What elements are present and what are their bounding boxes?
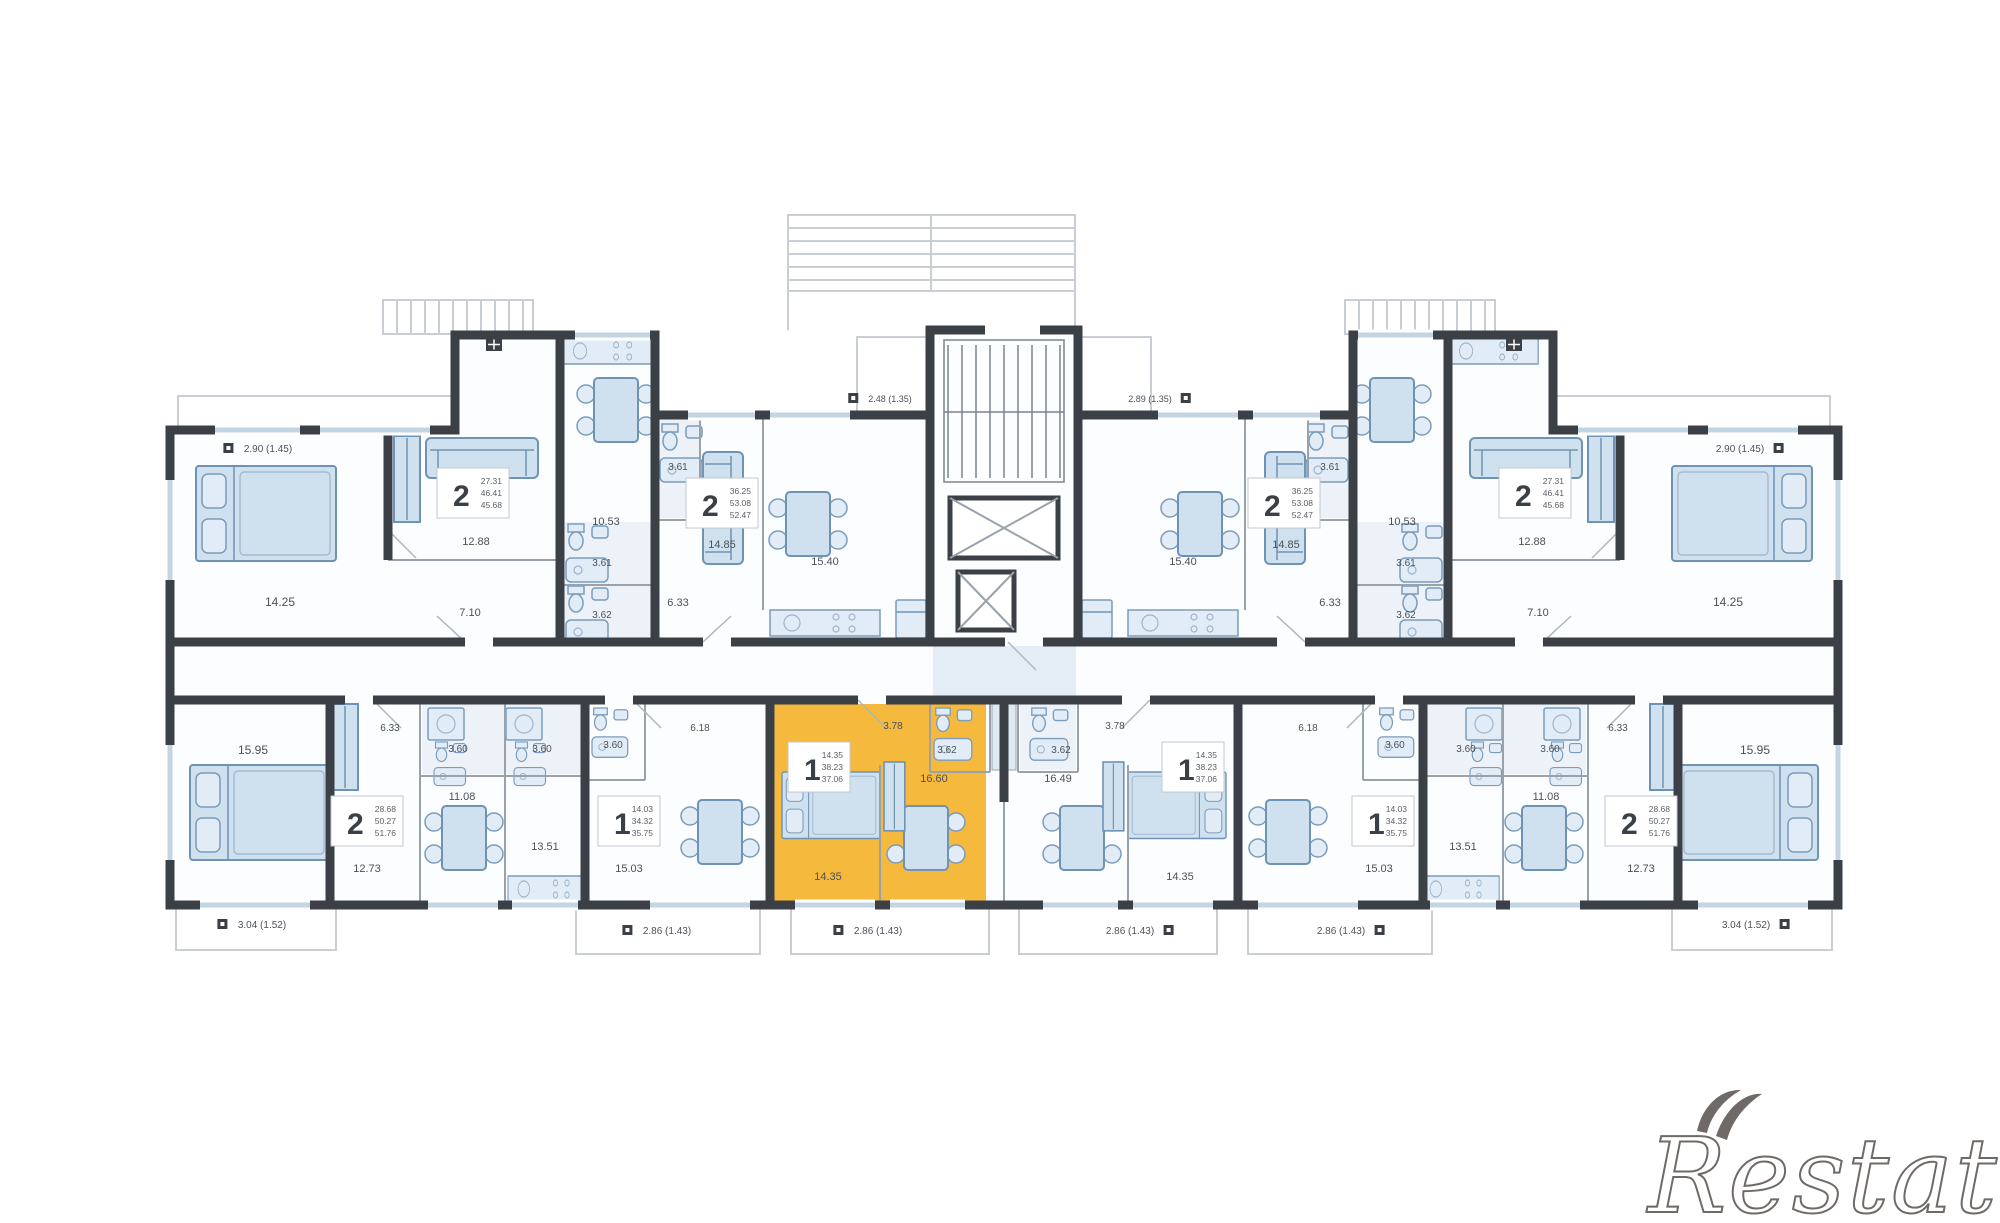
area-label: 3.62 bbox=[1051, 745, 1071, 756]
svg-text:53.08: 53.08 bbox=[1292, 498, 1314, 508]
svg-text:6.18: 6.18 bbox=[1298, 723, 1318, 734]
svg-text:38.23: 38.23 bbox=[1196, 762, 1218, 772]
area-label: 3.61 bbox=[1320, 462, 1340, 473]
svg-text:15.95: 15.95 bbox=[238, 743, 268, 757]
area-label: 7.10 bbox=[1527, 607, 1548, 619]
svg-text:2.86 (1.43): 2.86 (1.43) bbox=[854, 926, 902, 937]
svg-text:50.27: 50.27 bbox=[1649, 816, 1671, 826]
svg-text:7.10: 7.10 bbox=[459, 607, 480, 619]
svg-text:34.32: 34.32 bbox=[632, 816, 654, 826]
area-label: 6.33 bbox=[1319, 597, 1340, 609]
svg-text:50.27: 50.27 bbox=[375, 816, 397, 826]
svg-text:14.35: 14.35 bbox=[1166, 871, 1194, 883]
svg-text:51.76: 51.76 bbox=[375, 828, 397, 838]
svg-text:36.25: 36.25 bbox=[730, 486, 752, 496]
area-label: 13.51 bbox=[1449, 841, 1477, 853]
svg-text:14.03: 14.03 bbox=[1386, 804, 1408, 814]
svg-text:46.41: 46.41 bbox=[1543, 488, 1565, 498]
svg-text:3.62: 3.62 bbox=[1396, 610, 1416, 621]
svg-text:3.62: 3.62 bbox=[592, 610, 612, 621]
area-label: 3.60 bbox=[1456, 744, 1476, 755]
svg-text:3.60: 3.60 bbox=[1385, 740, 1405, 751]
unit-type-label: 227.3146.4145.68 bbox=[1499, 468, 1571, 518]
svg-text:37.06: 37.06 bbox=[822, 774, 844, 784]
svg-text:51.76: 51.76 bbox=[1649, 828, 1671, 838]
area-label: 2.86 (1.43) bbox=[622, 925, 691, 937]
area-label: 2.86 (1.43) bbox=[1317, 925, 1385, 937]
area-label: 12.88 bbox=[1518, 536, 1546, 548]
svg-text:27.31: 27.31 bbox=[481, 476, 503, 486]
area-label: 2.86 (1.43) bbox=[833, 925, 902, 937]
svg-text:2: 2 bbox=[1515, 480, 1532, 513]
unit-type-label: 227.3146.4145.68 bbox=[437, 468, 509, 518]
area-label: 3.60 bbox=[532, 744, 552, 755]
floorplan-page: 2.90 (1.45)14.2512.887.1010.533.613.623.… bbox=[0, 0, 2000, 1223]
area-label: 12.73 bbox=[353, 863, 381, 875]
svg-text:6.33: 6.33 bbox=[667, 597, 688, 609]
area-label: 3.78 bbox=[1105, 721, 1125, 732]
area-label: 15.03 bbox=[615, 863, 643, 875]
area-label: 3.62 bbox=[1396, 610, 1416, 621]
area-label: 15.40 bbox=[1169, 556, 1197, 568]
svg-text:14.03: 14.03 bbox=[632, 804, 654, 814]
area-label: 3.04 (1.52) bbox=[1722, 919, 1790, 931]
svg-text:6.33: 6.33 bbox=[380, 723, 400, 734]
svg-text:2.86 (1.43): 2.86 (1.43) bbox=[1106, 926, 1154, 937]
area-label: 14.85 bbox=[708, 539, 736, 551]
area-label: 14.35 bbox=[814, 871, 842, 883]
area-label: 7.10 bbox=[459, 607, 480, 619]
svg-text:14.35: 14.35 bbox=[1196, 750, 1218, 760]
svg-text:11.08: 11.08 bbox=[1533, 791, 1560, 803]
area-label: 3.60 bbox=[1385, 740, 1405, 751]
svg-text:14.85: 14.85 bbox=[1272, 539, 1300, 551]
svg-text:12.88: 12.88 bbox=[462, 536, 490, 548]
svg-text:27.31: 27.31 bbox=[1543, 476, 1565, 486]
svg-text:10.53: 10.53 bbox=[592, 516, 620, 528]
area-label: 10.53 bbox=[592, 516, 620, 528]
svg-text:15.95: 15.95 bbox=[1740, 743, 1770, 757]
svg-text:52.47: 52.47 bbox=[1292, 510, 1314, 520]
area-label: 3.78 bbox=[883, 721, 903, 732]
area-label: 14.35 bbox=[1166, 871, 1194, 883]
svg-text:3.04 (1.52): 3.04 (1.52) bbox=[1722, 920, 1770, 931]
svg-text:37.06: 37.06 bbox=[1196, 774, 1218, 784]
svg-text:6.18: 6.18 bbox=[690, 723, 710, 734]
area-label: 3.61 bbox=[668, 462, 688, 473]
svg-text:2.89 (1.35): 2.89 (1.35) bbox=[1128, 394, 1172, 404]
unit-type-label: 228.6850.2751.76 bbox=[1605, 796, 1677, 846]
area-label: 3.61 bbox=[592, 558, 612, 569]
svg-text:2: 2 bbox=[1264, 490, 1281, 523]
area-label: 15.95 bbox=[1740, 743, 1770, 757]
svg-text:2: 2 bbox=[702, 490, 719, 523]
svg-text:3.60: 3.60 bbox=[448, 744, 468, 755]
svg-text:28.68: 28.68 bbox=[1649, 804, 1671, 814]
area-label: 14.25 bbox=[265, 595, 295, 609]
svg-text:36.25: 36.25 bbox=[1292, 486, 1314, 496]
svg-text:11.08: 11.08 bbox=[449, 791, 476, 803]
area-label: 6.18 bbox=[690, 723, 710, 734]
svg-text:3.61: 3.61 bbox=[1320, 462, 1340, 473]
svg-text:3.78: 3.78 bbox=[1105, 721, 1125, 732]
svg-text:14.25: 14.25 bbox=[265, 595, 295, 609]
svg-text:14.85: 14.85 bbox=[708, 539, 736, 551]
area-label: 3.62 bbox=[592, 610, 612, 621]
svg-text:16.49: 16.49 bbox=[1044, 773, 1072, 785]
unit-type-label: 236.2553.0852.47 bbox=[686, 478, 758, 528]
svg-text:14.35: 14.35 bbox=[822, 750, 844, 760]
svg-text:15.40: 15.40 bbox=[811, 556, 839, 568]
svg-text:15.40: 15.40 bbox=[1169, 556, 1197, 568]
svg-text:7.10: 7.10 bbox=[1527, 607, 1548, 619]
svg-text:1: 1 bbox=[1178, 754, 1195, 787]
area-label: 3.60 bbox=[1540, 744, 1560, 755]
area-label: 16.49 bbox=[1044, 773, 1072, 785]
svg-text:2.90 (1.45): 2.90 (1.45) bbox=[1716, 444, 1764, 455]
svg-text:35.75: 35.75 bbox=[1386, 828, 1408, 838]
svg-text:3.04 (1.52): 3.04 (1.52) bbox=[238, 920, 286, 931]
svg-text:6.33: 6.33 bbox=[1319, 597, 1340, 609]
svg-text:14.35: 14.35 bbox=[814, 871, 842, 883]
svg-text:12.88: 12.88 bbox=[1518, 536, 1546, 548]
svg-text:2: 2 bbox=[453, 480, 470, 513]
svg-text:15.03: 15.03 bbox=[1365, 863, 1393, 875]
svg-text:28.68: 28.68 bbox=[375, 804, 397, 814]
svg-text:1: 1 bbox=[804, 754, 821, 787]
svg-text:45.68: 45.68 bbox=[481, 500, 503, 510]
unit-type-label: 228.6850.2751.76 bbox=[331, 796, 403, 846]
svg-text:2.86 (1.43): 2.86 (1.43) bbox=[643, 926, 691, 937]
svg-text:3.61: 3.61 bbox=[592, 558, 612, 569]
unit-type-label: 236.2553.0852.47 bbox=[1248, 478, 1320, 528]
area-label: 3.61 bbox=[1396, 558, 1416, 569]
area-label: 6.33 bbox=[1608, 723, 1628, 734]
area-label: 15.03 bbox=[1365, 863, 1393, 875]
svg-text:3.62: 3.62 bbox=[1051, 745, 1071, 756]
svg-text:3.62: 3.62 bbox=[937, 745, 957, 756]
unit-type-label: 114.0334.3235.75 bbox=[1352, 796, 1414, 846]
area-label: 16.60 bbox=[920, 773, 948, 785]
floorplan-svg: 2.90 (1.45)14.2512.887.1010.533.613.623.… bbox=[0, 0, 2000, 1223]
svg-text:35.75: 35.75 bbox=[632, 828, 654, 838]
svg-text:3.60: 3.60 bbox=[1540, 744, 1560, 755]
area-label: 3.60 bbox=[603, 740, 623, 751]
unit-type-label: 114.3538.2337.06 bbox=[1162, 742, 1224, 792]
svg-text:6.33: 6.33 bbox=[1608, 723, 1628, 734]
svg-text:2.48 (1.35): 2.48 (1.35) bbox=[868, 394, 912, 404]
svg-text:13.51: 13.51 bbox=[1449, 841, 1477, 853]
svg-text:2.86 (1.43): 2.86 (1.43) bbox=[1317, 926, 1365, 937]
svg-text:1: 1 bbox=[614, 808, 631, 841]
unit-type-label: 114.3538.2337.06 bbox=[788, 742, 850, 792]
area-label: 3.60 bbox=[448, 744, 468, 755]
svg-text:14.25: 14.25 bbox=[1713, 595, 1743, 609]
area-label: 14.25 bbox=[1713, 595, 1743, 609]
area-label: 3.62 bbox=[937, 745, 957, 756]
svg-text:3.60: 3.60 bbox=[603, 740, 623, 751]
area-label: 2.48 (1.35) bbox=[848, 393, 912, 404]
area-label: 15.40 bbox=[811, 556, 839, 568]
svg-text:3.61: 3.61 bbox=[668, 462, 688, 473]
unit-type-label: 114.0334.3235.75 bbox=[598, 796, 660, 846]
area-label: 11.08 bbox=[449, 791, 476, 803]
area-label: 12.73 bbox=[1627, 863, 1655, 875]
svg-text:38.23: 38.23 bbox=[822, 762, 844, 772]
watermark-logo: Restate bbox=[1646, 1090, 2000, 1223]
area-label: 6.33 bbox=[667, 597, 688, 609]
area-label: 11.08 bbox=[1533, 791, 1560, 803]
svg-text:2.90 (1.45): 2.90 (1.45) bbox=[244, 444, 292, 455]
area-label: 12.88 bbox=[462, 536, 490, 548]
svg-text:10.53: 10.53 bbox=[1388, 516, 1416, 528]
svg-text:53.08: 53.08 bbox=[730, 498, 752, 508]
area-label: 13.51 bbox=[531, 841, 559, 853]
svg-text:2: 2 bbox=[347, 808, 364, 841]
svg-text:3.61: 3.61 bbox=[1396, 558, 1416, 569]
area-label: 2.89 (1.35) bbox=[1128, 393, 1191, 404]
svg-text:16.60: 16.60 bbox=[920, 773, 948, 785]
svg-text:45.68: 45.68 bbox=[1543, 500, 1565, 510]
svg-text:52.47: 52.47 bbox=[730, 510, 752, 520]
svg-text:13.51: 13.51 bbox=[531, 841, 559, 853]
svg-text:12.73: 12.73 bbox=[1627, 863, 1655, 875]
area-label: 6.33 bbox=[380, 723, 400, 734]
area-label: 15.95 bbox=[238, 743, 268, 757]
svg-text:1: 1 bbox=[1368, 808, 1385, 841]
svg-text:34.32: 34.32 bbox=[1386, 816, 1408, 826]
svg-text:46.41: 46.41 bbox=[481, 488, 503, 498]
svg-text:3.78: 3.78 bbox=[883, 721, 903, 732]
svg-text:3.60: 3.60 bbox=[532, 744, 552, 755]
area-label: 6.18 bbox=[1298, 723, 1318, 734]
area-label: 14.85 bbox=[1272, 539, 1300, 551]
area-label: 2.86 (1.43) bbox=[1106, 925, 1174, 937]
svg-text:2: 2 bbox=[1621, 808, 1638, 841]
svg-text:15.03: 15.03 bbox=[615, 863, 643, 875]
area-label: 10.53 bbox=[1388, 516, 1416, 528]
area-label: 3.04 (1.52) bbox=[217, 919, 286, 931]
watermark-text: Restate bbox=[1646, 1115, 2000, 1223]
svg-text:3.60: 3.60 bbox=[1456, 744, 1476, 755]
svg-text:12.73: 12.73 bbox=[353, 863, 381, 875]
